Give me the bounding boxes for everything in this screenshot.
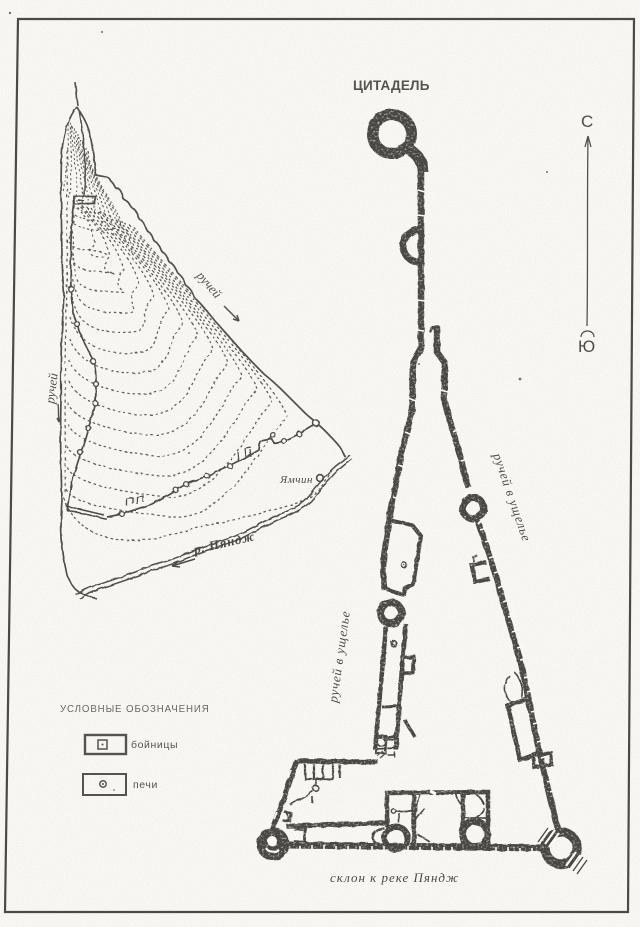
svg-text:Ю: Ю (578, 337, 595, 356)
svg-text:бойницы: бойницы (131, 739, 178, 751)
svg-text:С: С (581, 112, 593, 131)
svg-text:Ямчин: Ямчин (279, 474, 313, 486)
svg-text:печи: печи (133, 779, 158, 791)
svg-text:ЦИТАДЕЛЬ: ЦИТАДЕЛЬ (353, 78, 430, 93)
svg-text:УСЛОВНЫЕ ОБОЗНАЧЕНИЯ: УСЛОВНЫЕ ОБОЗНАЧЕНИЯ (60, 704, 210, 715)
svg-text:склон к реке Пяндж: склон к реке Пяндж (330, 870, 459, 885)
